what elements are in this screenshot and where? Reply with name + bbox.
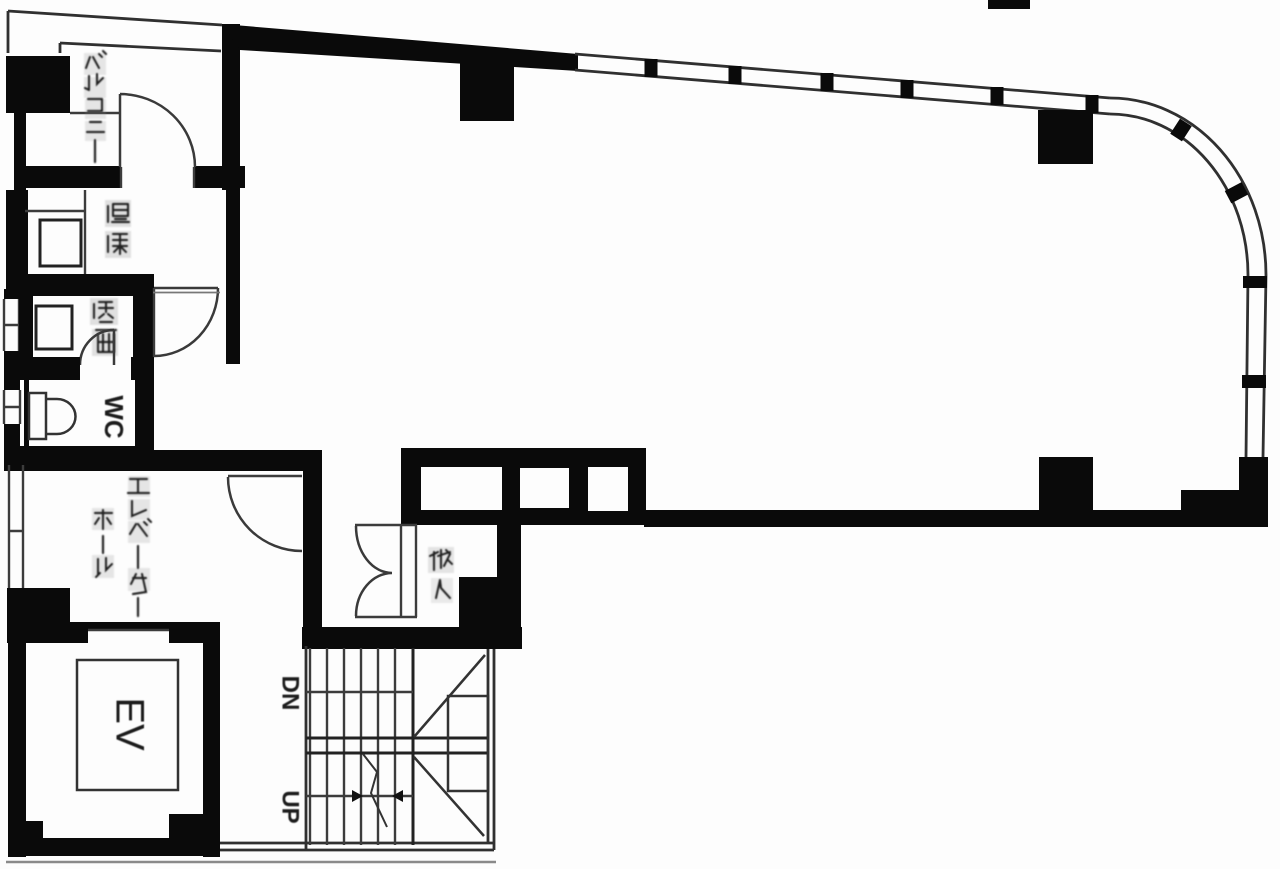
- svg-text:EV: EV: [107, 697, 151, 751]
- svg-text:UP: UP: [277, 790, 304, 823]
- svg-text:DN: DN: [277, 676, 304, 711]
- svg-text:WC: WC: [99, 395, 129, 439]
